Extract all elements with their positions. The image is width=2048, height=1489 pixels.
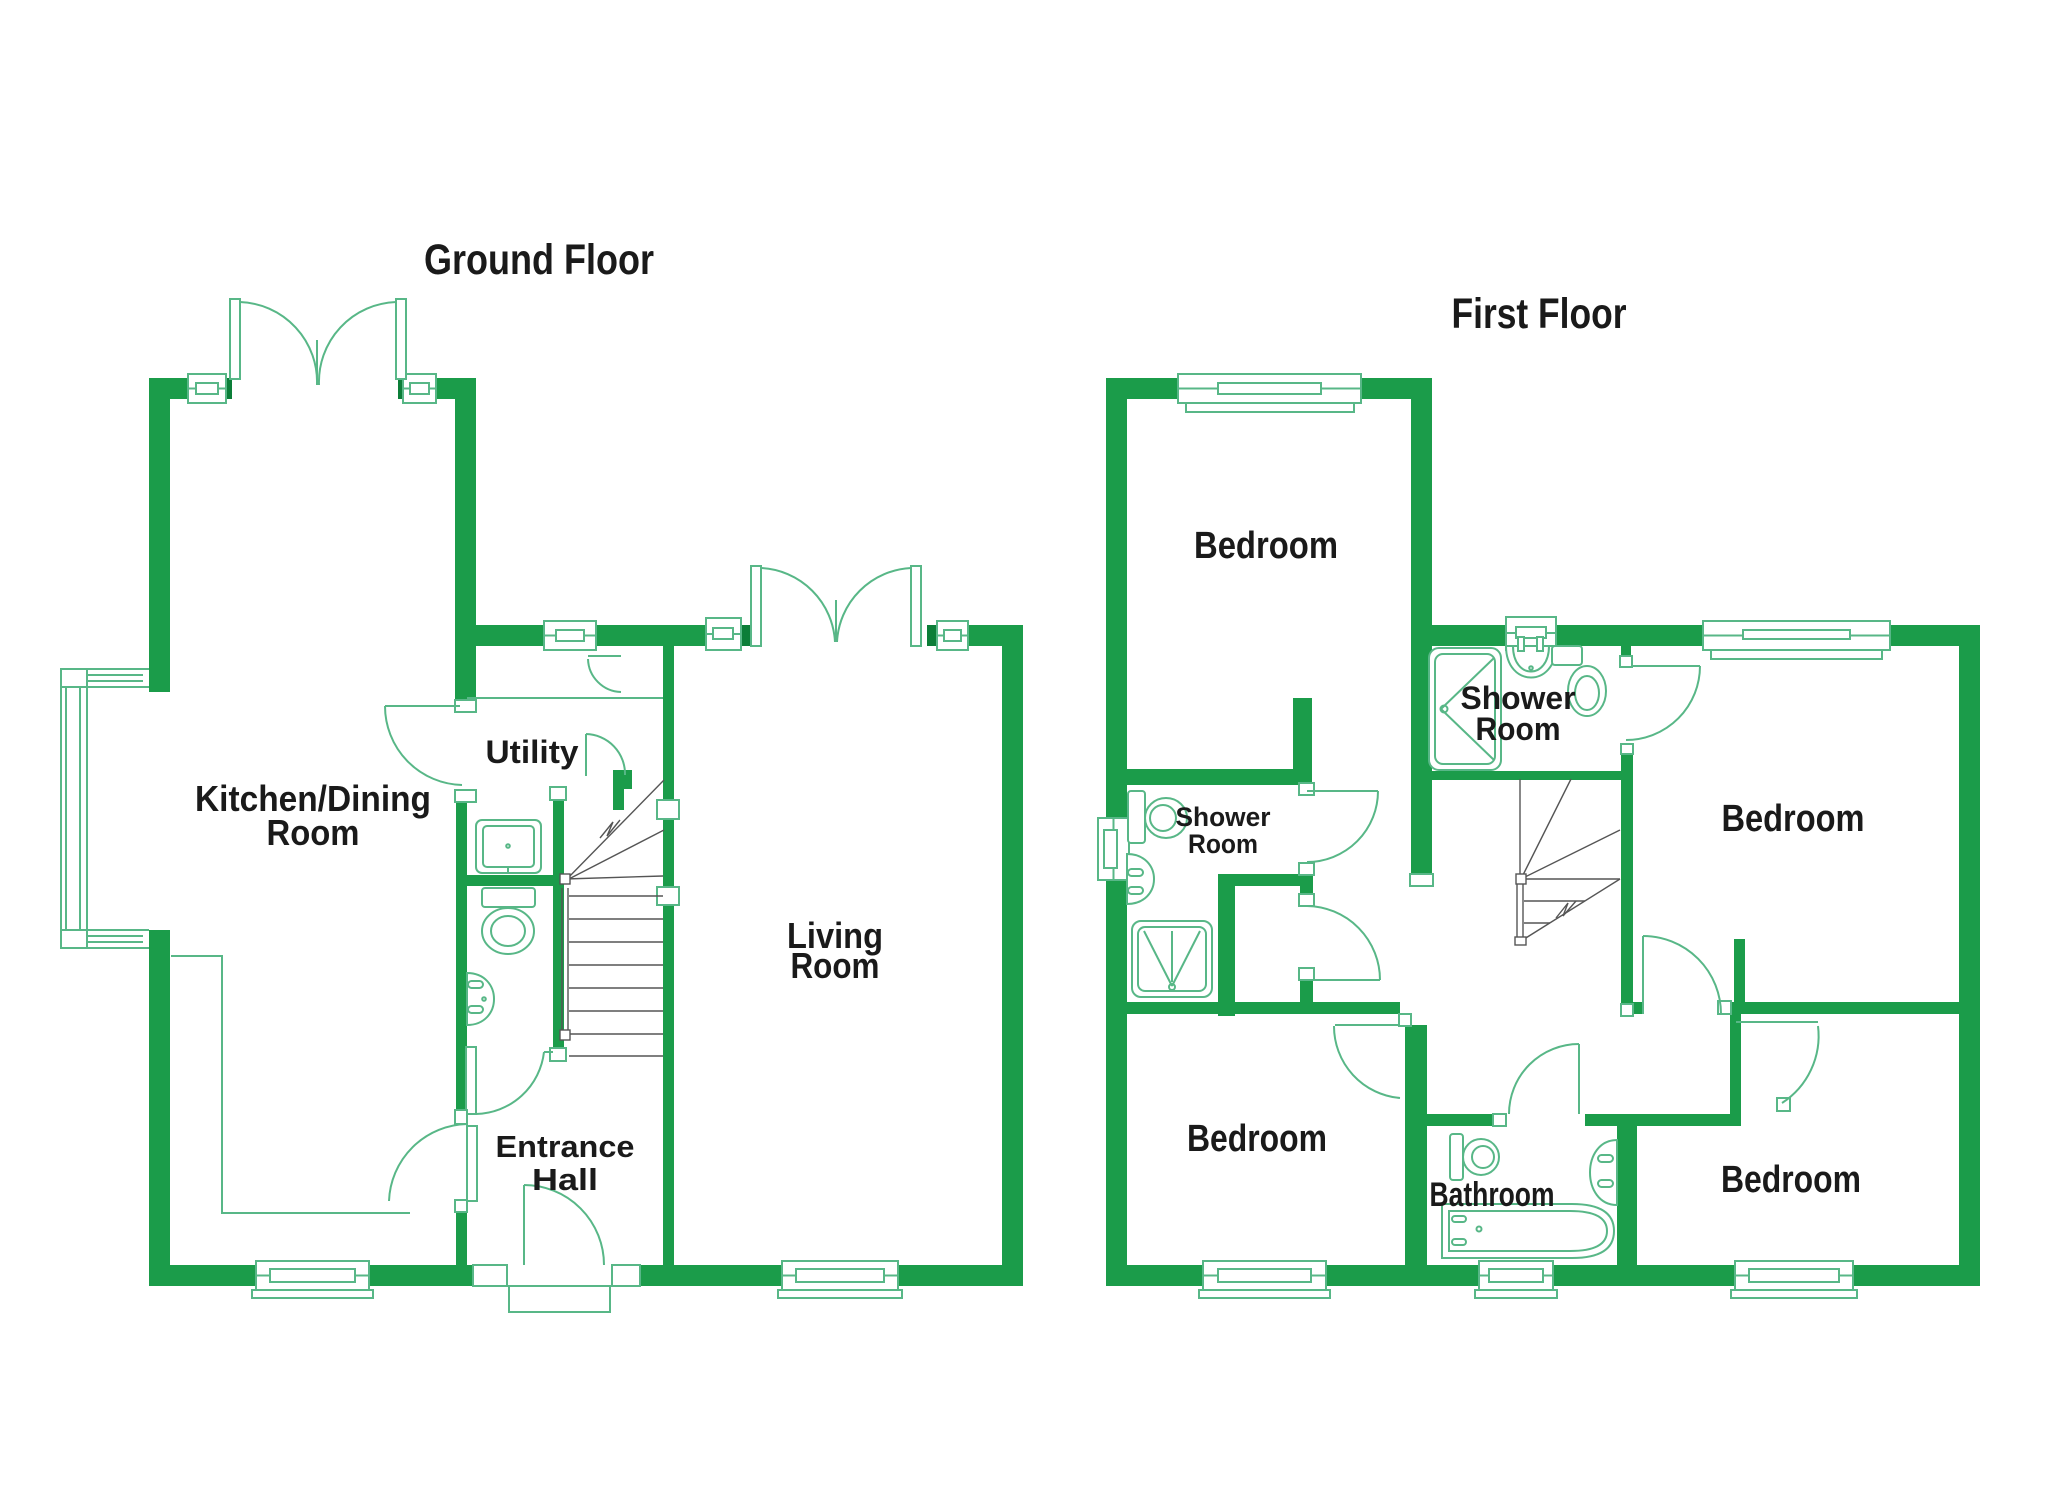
svg-text:Bedroom: Bedroom bbox=[1722, 798, 1865, 840]
svg-text:Entrance: Entrance bbox=[496, 1129, 635, 1164]
svg-text:Bedroom: Bedroom bbox=[1187, 1118, 1327, 1160]
svg-text:Room: Room bbox=[1476, 711, 1561, 747]
svg-text:First Floor: First Floor bbox=[1452, 290, 1627, 338]
svg-text:Ground Floor: Ground Floor bbox=[424, 236, 654, 284]
svg-text:Hall: Hall bbox=[532, 1162, 598, 1197]
svg-text:Utility: Utility bbox=[486, 734, 579, 770]
svg-text:Bathroom: Bathroom bbox=[1430, 1176, 1555, 1214]
svg-text:Bedroom: Bedroom bbox=[1721, 1159, 1861, 1201]
svg-text:Room: Room bbox=[791, 945, 880, 986]
svg-text:Shower: Shower bbox=[1176, 802, 1271, 832]
svg-text:Room: Room bbox=[1188, 829, 1258, 859]
svg-text:Bedroom: Bedroom bbox=[1194, 525, 1338, 567]
svg-text:Room: Room bbox=[267, 812, 360, 853]
